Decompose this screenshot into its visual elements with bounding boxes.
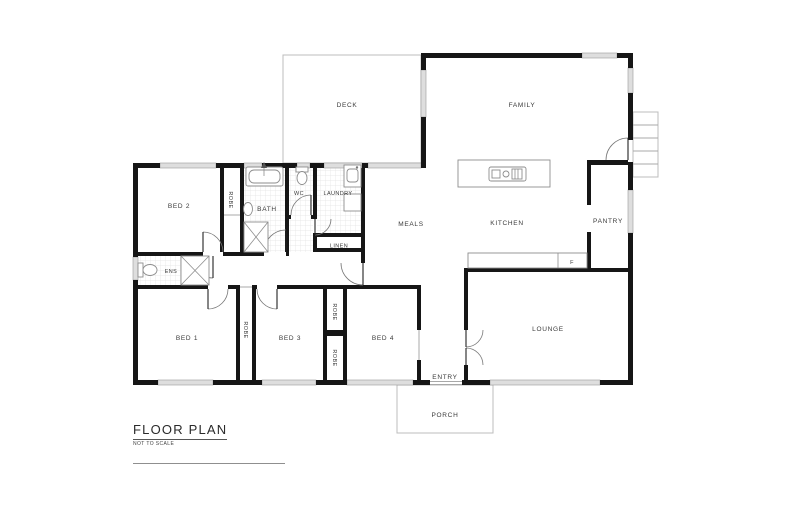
steps-outline: [633, 112, 658, 177]
room-label-porch: PORCH: [432, 412, 459, 419]
room-label-robe-bed2: ROBE: [227, 191, 233, 208]
floor-plan-page: DECK FAMILY BED 2 ROBE BATH WC LAUNDRY L…: [0, 0, 790, 527]
front-door-threshold: [430, 382, 462, 385]
room-label-bed1: BED 1: [176, 335, 198, 342]
room-label-robe-bed1: ROBE: [242, 321, 248, 338]
room-label-lounge: LOUNGE: [532, 326, 564, 333]
scale-note: NOT TO SCALE: [133, 441, 227, 447]
floor-plan-canvas: DECK FAMILY BED 2 ROBE BATH WC LAUNDRY L…: [0, 0, 790, 527]
room-label-wc: WC: [294, 191, 304, 197]
room-label-robe-bed3-top: ROBE: [331, 303, 337, 320]
title-block: FLOOR PLAN NOT TO SCALE: [133, 421, 227, 447]
room-label-bed3: BED 3: [279, 335, 301, 342]
room-label-bed4: BED 4: [372, 335, 394, 342]
room-label-family: FAMILY: [509, 102, 536, 109]
room-label-entry: ENTRY: [432, 374, 457, 381]
fridge-label: F: [570, 260, 574, 266]
divider-line: [133, 463, 285, 464]
porch-outline: [397, 385, 493, 433]
page-title: FLOOR PLAN: [133, 422, 227, 440]
room-label-robe-bed3-bottom: ROBE: [331, 349, 337, 366]
room-label-linen: LINEN: [330, 244, 348, 250]
room-label-pantry: PANTRY: [593, 218, 623, 225]
room-label-deck: DECK: [337, 102, 358, 109]
room-label-bed2: BED 2: [168, 203, 190, 210]
wc-toilet: [296, 167, 308, 185]
room-label-ens: ENS: [165, 269, 178, 275]
kitchen-island: [458, 160, 550, 187]
room-label-meals: MEALS: [398, 221, 424, 228]
deck-outline: [283, 55, 421, 163]
room-label-bath: BATH: [257, 206, 277, 213]
room-label-laundry: LAUNDRY: [324, 191, 353, 197]
room-label-kitchen: KITCHEN: [490, 220, 523, 227]
